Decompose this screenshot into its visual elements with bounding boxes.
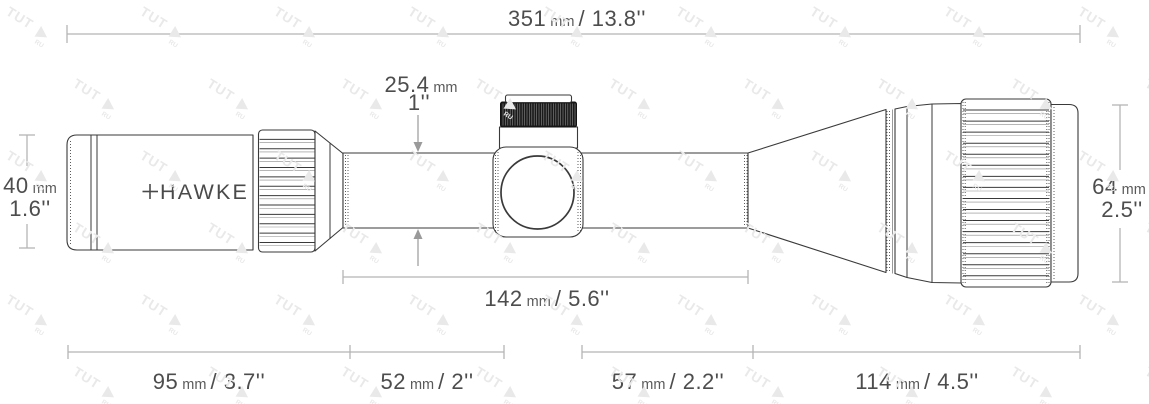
watermark-text: TUT (874, 76, 907, 104)
watermark-subtext: RU (569, 39, 581, 50)
watermark-subtext: RU (770, 399, 782, 404)
watermark-text: TUT (740, 364, 773, 392)
watermark-text: TUT (405, 292, 438, 320)
watermark-subtext: RU (1038, 399, 1050, 404)
watermark-subtext: RU (33, 327, 45, 338)
watermark-text: TUT (472, 76, 505, 104)
watermark-text: TUT (1142, 220, 1149, 248)
watermark-text: TUT (1075, 292, 1108, 320)
watermark: TUTRU (133, 4, 187, 50)
watermark-text: TUT (137, 4, 170, 32)
watermark-subtext: RU (368, 111, 380, 122)
watermark-subtext: RU (904, 399, 916, 404)
dim-eyepiece-diameter-imperial: 1.6'' (9, 196, 50, 221)
watermark-subtext: RU (636, 255, 648, 266)
watermark-text: TUT (338, 364, 371, 392)
watermark-subtext: RU (636, 399, 648, 404)
watermark: TUTRU (468, 364, 522, 404)
watermark-text: TUT (1142, 76, 1149, 104)
watermark: TUTRU (803, 4, 857, 50)
arrow-up-icon (414, 229, 423, 239)
watermark-text: TUT (606, 76, 639, 104)
watermark: TUTRU (66, 76, 120, 122)
watermark-subtext: RU (167, 327, 179, 338)
watermark: TUTRU (401, 4, 455, 50)
watermark-subtext: RU (502, 255, 514, 266)
dim-objective-diameter-label: 64 mm (1092, 174, 1146, 199)
watermark-text: TUT (271, 292, 304, 320)
watermark-text: TUT (1075, 148, 1108, 176)
watermark-subtext: RU (971, 39, 983, 50)
watermark-subtext: RU (435, 39, 447, 50)
watermark-subtext: RU (301, 39, 313, 50)
watermark-subtext: RU (368, 255, 380, 266)
watermark-text: TUT (3, 292, 36, 320)
watermark-subtext: RU (502, 399, 514, 404)
watermark-subtext: RU (636, 111, 648, 122)
watermark: TUTRU (803, 292, 857, 338)
dim-objective-length-label: 114 mm / 4.5'' (855, 369, 979, 394)
watermark-subtext: RU (435, 327, 447, 338)
objective-focus-ring (961, 99, 1051, 287)
dim-objective-diameter: 64 mm 2.5'' (1092, 105, 1146, 282)
dim-objective-diameter-imperial: 2.5'' (1101, 197, 1142, 222)
watermark: TUTRU (1138, 76, 1149, 122)
watermark: TUTRU (200, 76, 254, 122)
watermark: TUTRU (334, 76, 388, 122)
watermark-text: TUT (3, 148, 36, 176)
watermark-subtext: RU (234, 255, 246, 266)
watermark-subtext: RU (837, 327, 849, 338)
scope-dimension-diagram: HAWKE (0, 0, 1149, 404)
watermark: TUTRU (0, 292, 54, 338)
watermark: TUTRU (133, 292, 187, 338)
watermark-text: TUT (1142, 364, 1149, 392)
watermark-text: TUT (70, 364, 103, 392)
watermark: TUTRU (669, 4, 723, 50)
dim-eyepiece-diameter-label: 40 mm (3, 173, 57, 198)
watermark-subtext: RU (770, 255, 782, 266)
watermark-text: TUT (70, 76, 103, 104)
dim-total-length: 351 mm / 13.8'' (67, 6, 1080, 43)
watermark-text: TUT (941, 292, 974, 320)
watermark: TUTRU (602, 76, 656, 122)
watermark: TUTRU (1071, 4, 1125, 50)
watermark-text: TUT (673, 292, 706, 320)
riflescope-drawing: HAWKE (67, 95, 1078, 287)
watermark-subtext: RU (703, 327, 715, 338)
watermark-text: TUT (3, 4, 36, 32)
watermark-subtext: RU (368, 399, 380, 404)
watermark-subtext: RU (971, 327, 983, 338)
watermark-subtext: RU (234, 111, 246, 122)
watermark-subtext: RU (100, 111, 112, 122)
objective-end-cap (1051, 105, 1078, 283)
objective-bell (895, 104, 962, 284)
watermark: TUTRU (736, 364, 790, 404)
eyepiece-cone (315, 131, 343, 251)
watermark: TUTRU (1004, 364, 1058, 404)
watermark-text: TUT (740, 76, 773, 104)
watermark-subtext: RU (770, 111, 782, 122)
watermark-subtext: RU (1105, 39, 1117, 50)
watermark-text: TUT (1008, 364, 1041, 392)
watermark-text: TUT (807, 4, 840, 32)
watermark: TUTRU (937, 4, 991, 50)
dim-tube-rear-length-label: 52 mm / 2'' (380, 369, 473, 394)
dim-tube-diameter-imperial: 1'' (408, 90, 430, 115)
watermark-text: TUT (807, 292, 840, 320)
watermark-subtext: RU (234, 399, 246, 404)
watermark-subtext: RU (167, 39, 179, 50)
watermark-text: TUT (271, 4, 304, 32)
watermark-text: TUT (137, 292, 170, 320)
watermark: TUTRU (736, 76, 790, 122)
watermark: TUTRU (1138, 220, 1149, 266)
watermark-text: TUT (673, 4, 706, 32)
watermark-subtext: RU (569, 327, 581, 338)
watermark: TUTRU (267, 292, 321, 338)
watermark-text: TUT (405, 4, 438, 32)
watermark-subtext: RU (301, 327, 313, 338)
watermark-text: TUT (338, 76, 371, 104)
watermark-subtext: RU (1105, 327, 1117, 338)
watermark: TUTRU (401, 292, 455, 338)
watermark: TUTRU (66, 364, 120, 404)
watermark-subtext: RU (837, 39, 849, 50)
watermark-text: TUT (204, 76, 237, 104)
watermark-subtext: RU (33, 39, 45, 50)
watermark-subtext: RU (100, 399, 112, 404)
watermark-subtext: RU (100, 255, 112, 266)
watermark: TUTRU (669, 292, 723, 338)
watermark-text: TUT (941, 4, 974, 32)
watermark: TUTRU (1071, 292, 1125, 338)
watermark: TUTRU (267, 4, 321, 50)
objective-cone (748, 109, 895, 274)
watermark-text: TUT (472, 364, 505, 392)
watermark-subtext: RU (703, 39, 715, 50)
watermark: TUTRU (1138, 364, 1149, 404)
watermark: TUTRU (0, 4, 54, 50)
watermark: TUTRU (937, 292, 991, 338)
